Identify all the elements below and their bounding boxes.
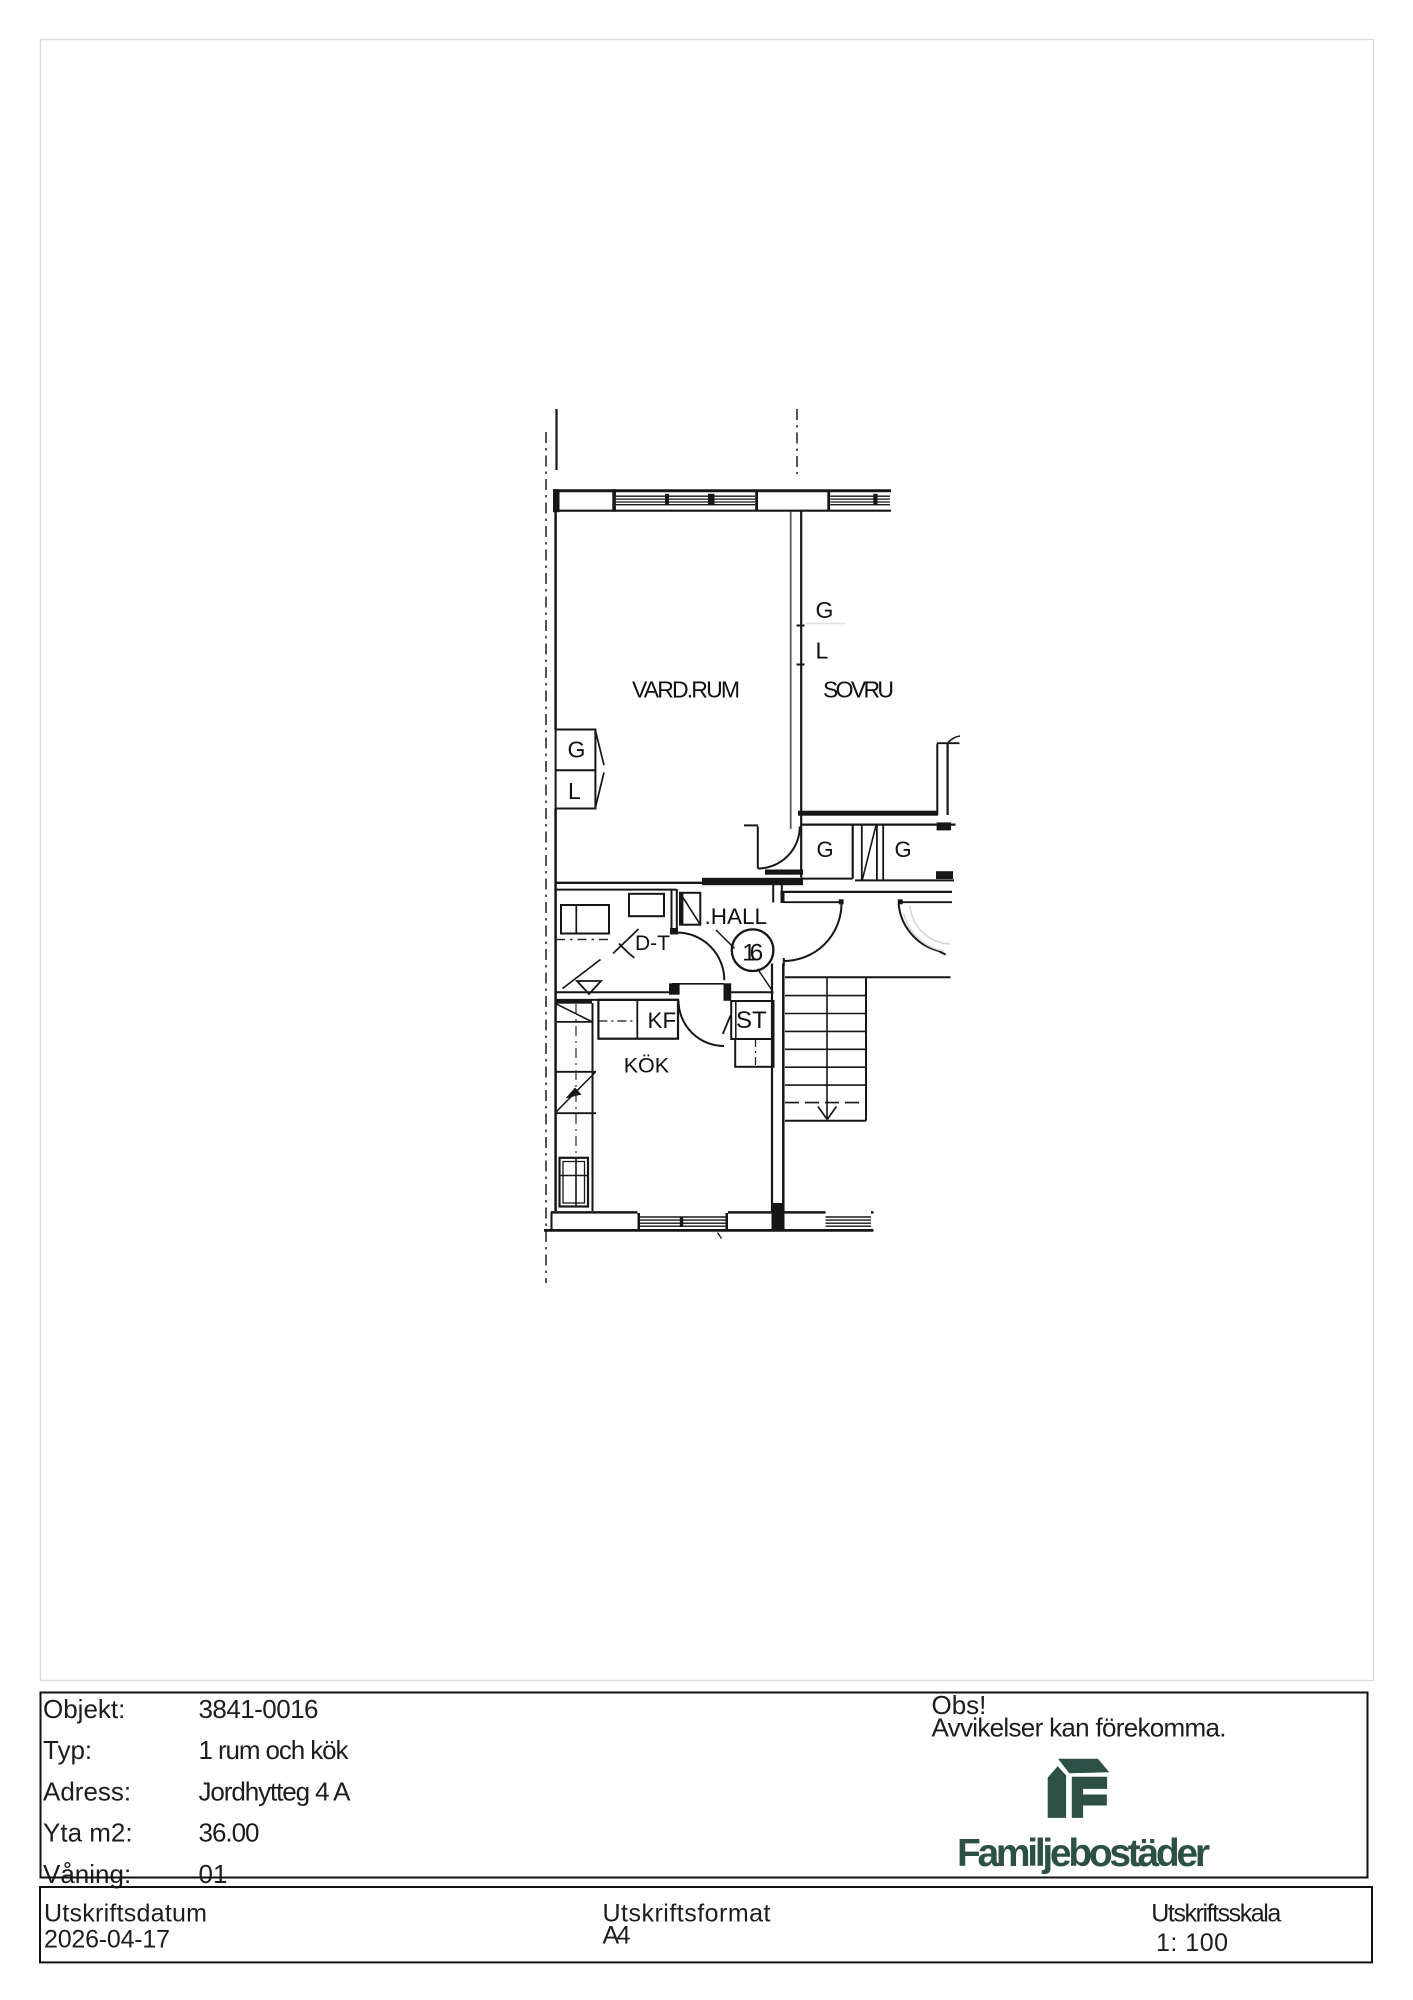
svg-text:G: G [568,737,586,763]
svg-text:3841-0016: 3841-0016 [199,1694,319,1724]
svg-text:Typ:: Typ: [43,1735,92,1765]
svg-text:Jordhytteg 4 A: Jordhytteg 4 A [199,1776,352,1806]
svg-text:D-T: D-T [635,932,670,955]
svg-text:G: G [816,597,834,623]
svg-text:Våning:: Våning: [43,1859,131,1889]
svg-text:1: 100: 1: 100 [1156,1929,1228,1957]
svg-text:Yta m2:: Yta m2: [43,1818,133,1848]
svg-text:36.00: 36.00 [199,1818,260,1848]
svg-text:Utskriftsdatum: Utskriftsdatum [44,1900,207,1928]
svg-text:1 rum och kök: 1 rum och kök [199,1735,350,1765]
svg-text:KÖK: KÖK [624,1054,670,1078]
svg-text:VARD.RUM: VARD.RUM [632,677,740,703]
svg-text:L: L [568,778,581,804]
svg-text:G: G [817,837,834,862]
svg-text:G: G [895,837,912,862]
svg-text:2026-04-17: 2026-04-17 [44,1926,170,1954]
svg-text:A4: A4 [603,1922,631,1950]
svg-text:L: L [816,638,829,664]
svg-text:Objekt:: Objekt: [43,1694,125,1724]
svg-text:.HALL: .HALL [705,904,768,929]
svg-text:Adress:: Adress: [43,1776,131,1806]
svg-text:SOVRU: SOVRU [823,677,894,703]
svg-text:ST: ST [736,1007,767,1034]
svg-text:01: 01 [199,1859,228,1889]
svg-text:16: 16 [742,939,763,966]
svg-text:Familjebostäder: Familjebostäder [957,1832,1210,1875]
svg-text:Utskriftsskala: Utskriftsskala [1151,1900,1281,1928]
svg-text:Avvikelser kan förekomma.: Avvikelser kan förekomma. [932,1713,1227,1743]
svg-text:KF: KF [648,1008,677,1033]
